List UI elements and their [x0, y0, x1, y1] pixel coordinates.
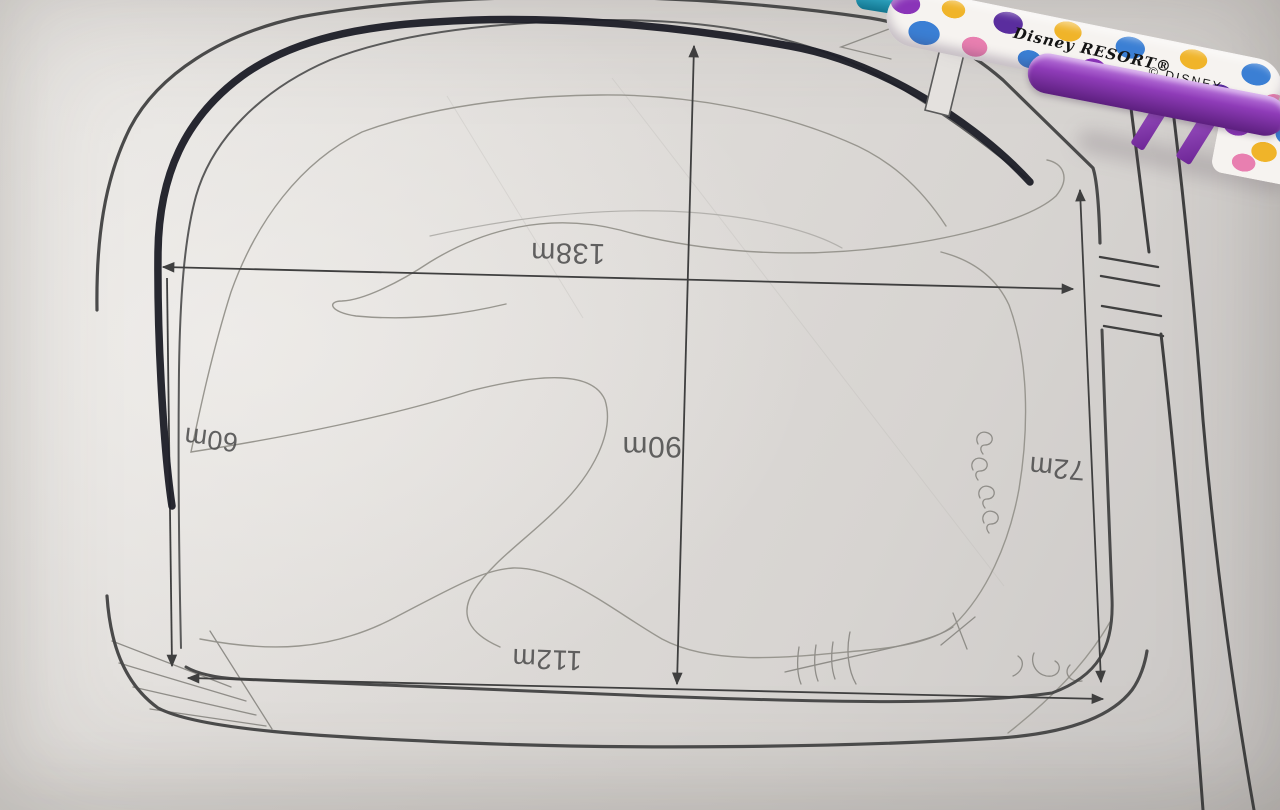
dimension-line-72m	[1080, 190, 1101, 682]
inner-boundary-line	[179, 20, 1026, 648]
printed-boundary	[97, 0, 1147, 747]
dimension-line-90m	[677, 46, 694, 684]
boundary-right-bottom-inner	[186, 330, 1112, 702]
plot-diagram-drawing	[0, 0, 1280, 810]
label-bottom-width: 112m	[511, 642, 582, 676]
label-center-height: 90m	[622, 429, 682, 463]
label-top-width: 138m	[530, 235, 605, 269]
label-left-height: 60m	[182, 420, 239, 457]
outer-boundary-bottom	[107, 596, 1147, 747]
pencil-hook-sweep	[333, 160, 1064, 318]
dimension-lines	[163, 46, 1103, 699]
pencil-pond-contours	[191, 95, 1110, 733]
dimension-line-138m	[163, 267, 1073, 289]
pencil-annotations	[112, 29, 1082, 729]
worksheet-photo: 138m 90m 60m 72m 112m Disney RESORT® © D…	[0, 0, 1280, 810]
junction-stubs	[1100, 257, 1163, 336]
pencil-inner-contour	[430, 211, 842, 248]
bottom-right-squiggles	[1013, 653, 1082, 681]
road-left-line-lower	[1161, 334, 1203, 810]
handwritten-digit-scribbles	[972, 432, 998, 533]
pencil-blob-outline	[191, 95, 946, 647]
paper-showthrough-lines	[447, 78, 1004, 586]
pencil-right-oval	[941, 252, 1026, 625]
pencil-arrow-sketch	[841, 29, 891, 59]
label-right-height: 72m	[1028, 450, 1087, 487]
road-right-line	[1169, 78, 1254, 810]
